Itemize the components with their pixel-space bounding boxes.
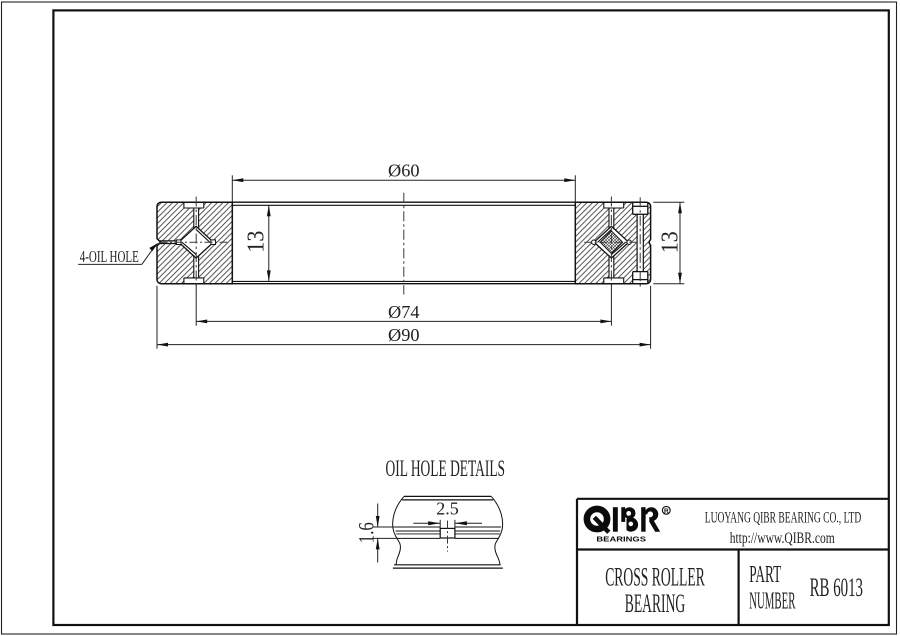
- svg-text:OIL HOLE DETAILS: OIL HOLE DETAILS: [386, 456, 506, 481]
- svg-text:Ø90: Ø90: [388, 325, 420, 345]
- svg-text:BEARINGS: BEARINGS: [596, 535, 646, 544]
- svg-text:NUMBER: NUMBER: [749, 589, 795, 615]
- svg-text:Ø60: Ø60: [388, 161, 420, 181]
- svg-text:1.6: 1.6: [353, 522, 378, 543]
- svg-text:http://www.QIBR.com: http://www.QIBR.com: [730, 530, 835, 547]
- svg-text:CROSS ROLLER: CROSS ROLLER: [605, 563, 705, 592]
- svg-text:13: 13: [244, 231, 270, 253]
- svg-text:R: R: [664, 508, 669, 515]
- svg-text:4-OIL HOLE: 4-OIL HOLE: [80, 247, 139, 266]
- svg-text:BEARING: BEARING: [625, 589, 685, 618]
- svg-text:LUOYANG QIBR BEARING CO., LTD: LUOYANG QIBR BEARING CO., LTD: [705, 510, 862, 527]
- svg-text:Ø74: Ø74: [388, 302, 420, 322]
- svg-text:2.5: 2.5: [436, 499, 459, 519]
- svg-text:13: 13: [658, 231, 684, 253]
- svg-text:RB 6013: RB 6013: [810, 573, 863, 602]
- svg-text:PART: PART: [749, 562, 781, 588]
